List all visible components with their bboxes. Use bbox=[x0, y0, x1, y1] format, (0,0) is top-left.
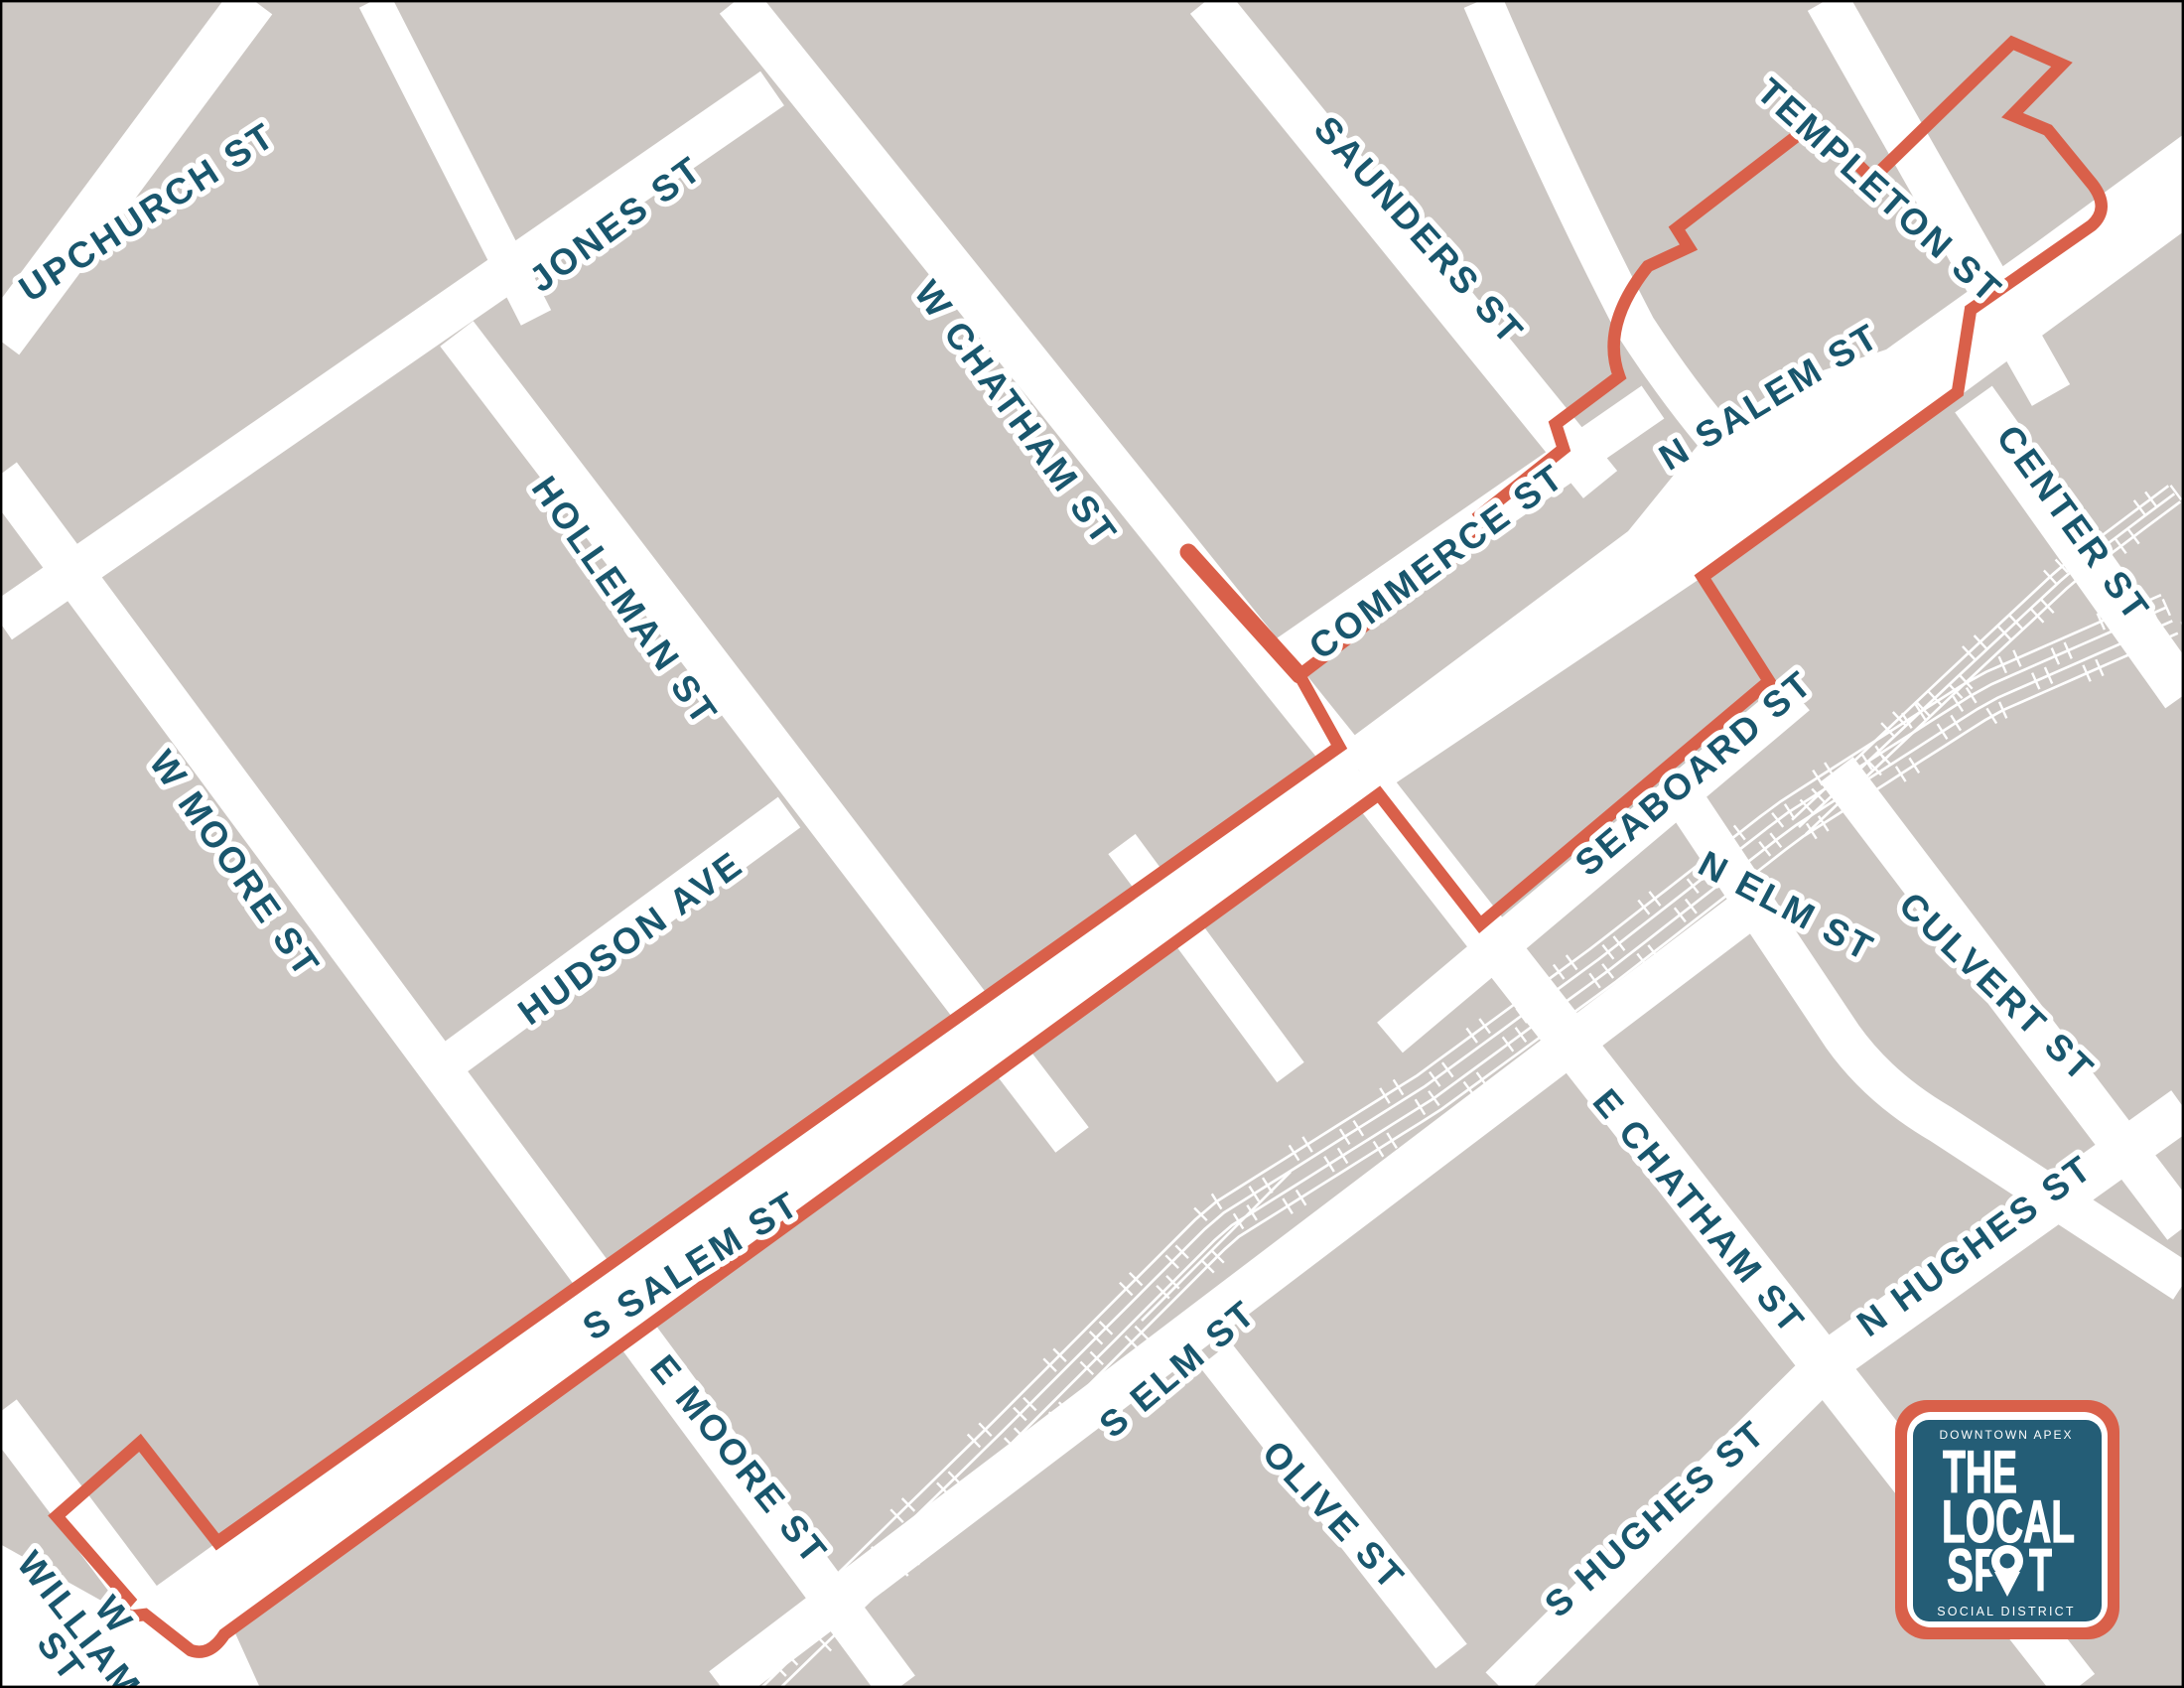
svg-text:SOCIAL DISTRICT: SOCIAL DISTRICT bbox=[1937, 1605, 2076, 1618]
svg-text:T: T bbox=[2029, 1537, 2052, 1604]
